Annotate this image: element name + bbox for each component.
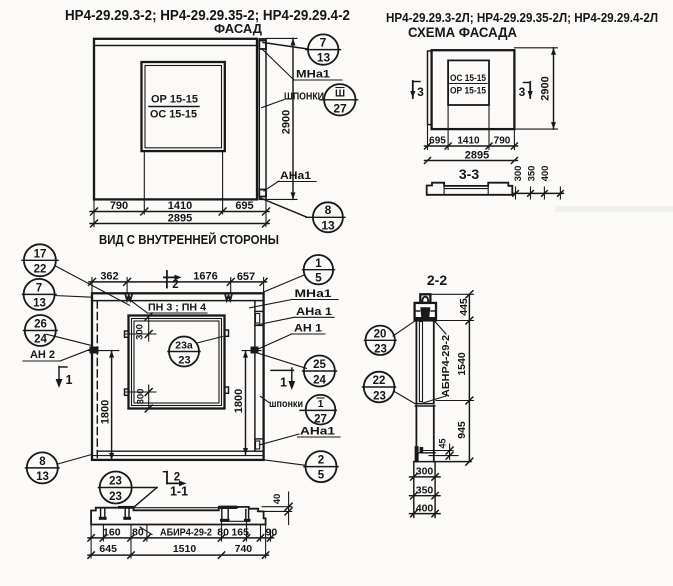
svg-text:740: 740 [235, 543, 253, 555]
svg-text:23: 23 [374, 344, 387, 356]
svg-text:445: 445 [458, 298, 470, 316]
svg-text:24: 24 [34, 334, 47, 346]
svg-text:1-1: 1-1 [170, 485, 188, 499]
svg-text:ОР 15-15: ОР 15-15 [151, 94, 198, 106]
svg-text:300: 300 [136, 389, 147, 405]
svg-text:ВИД С ВНУТРЕННЕЙ СТОРОНЫ: ВИД С ВНУТРЕННЕЙ СТОРОНЫ [99, 232, 279, 247]
svg-text:20: 20 [374, 329, 387, 341]
svg-text:17: 17 [34, 249, 47, 261]
svg-text:МНа1: МНа1 [296, 69, 330, 81]
svg-text:шпонки: шпонки [269, 399, 303, 410]
svg-text:25: 25 [313, 359, 326, 371]
svg-text:40: 40 [272, 494, 283, 505]
svg-text:24: 24 [313, 375, 326, 387]
svg-text:300: 300 [513, 166, 524, 182]
svg-text:1410: 1410 [168, 200, 192, 212]
svg-text:1410: 1410 [457, 136, 480, 147]
svg-text:ОС 15-15: ОС 15-15 [150, 109, 197, 121]
svg-text:300: 300 [416, 466, 434, 478]
svg-text:13: 13 [36, 471, 49, 483]
svg-text:7: 7 [320, 36, 327, 50]
svg-text:1: 1 [318, 398, 324, 410]
svg-text:22: 22 [34, 264, 47, 276]
svg-text:ОС 15-15: ОС 15-15 [450, 73, 487, 84]
svg-text:8: 8 [39, 456, 46, 468]
svg-text:Ш: Ш [335, 89, 345, 100]
svg-text:26: 26 [34, 319, 47, 331]
svg-text:АН 1: АН 1 [294, 323, 322, 335]
svg-text:90: 90 [266, 527, 278, 539]
svg-text:8: 8 [325, 203, 332, 217]
svg-text:3-3: 3-3 [459, 166, 479, 182]
svg-text:ФАСАД: ФАСАД [214, 21, 263, 36]
svg-text:27: 27 [314, 414, 327, 426]
svg-text:165: 165 [231, 527, 249, 539]
svg-text:300: 300 [135, 324, 146, 340]
svg-text:7: 7 [36, 283, 42, 295]
svg-text:НР4-29.29.3-2Л; НР4-29.29.35-2: НР4-29.29.3-2Л; НР4-29.29.35-2Л; НР4-29.… [386, 10, 658, 25]
svg-text:АНа 1: АНа 1 [296, 306, 332, 318]
svg-text:350: 350 [416, 484, 434, 496]
svg-text:1540: 1540 [456, 352, 468, 376]
svg-text:2895: 2895 [465, 150, 489, 162]
svg-text:1800: 1800 [233, 389, 245, 413]
svg-text:1: 1 [66, 373, 73, 387]
svg-text:2: 2 [172, 279, 178, 291]
svg-text:2895: 2895 [168, 213, 192, 225]
svg-text:ПН 3 ; ПН 4: ПН 3 ; ПН 4 [148, 302, 206, 314]
svg-text:790: 790 [110, 200, 128, 212]
svg-text:НР4-29.29.3-2; НР4-29.29.35-2;: НР4-29.29.3-2; НР4-29.29.35-2; НР4-29.29… [65, 7, 350, 24]
svg-text:23а: 23а [175, 340, 193, 352]
svg-text:1: 1 [315, 258, 322, 270]
svg-text:45: 45 [438, 438, 448, 448]
svg-text:ШПОНКИ: ШПОНКИ [284, 92, 324, 103]
svg-text:80: 80 [217, 527, 229, 539]
svg-text:ОР 15-15: ОР 15-15 [450, 86, 487, 97]
svg-text:3: 3 [519, 85, 526, 99]
svg-text:657: 657 [237, 271, 255, 283]
svg-text:645: 645 [99, 543, 117, 555]
svg-text:2900: 2900 [540, 76, 552, 100]
svg-text:695: 695 [429, 136, 446, 147]
svg-text:СХЕМА ФАСАДА: СХЕМА ФАСАДА [408, 25, 517, 40]
svg-text:5: 5 [315, 273, 322, 285]
svg-text:2: 2 [174, 472, 180, 484]
svg-text:1510: 1510 [173, 543, 197, 555]
svg-text:695: 695 [235, 200, 253, 212]
svg-text:3: 3 [417, 85, 424, 99]
svg-text:1800: 1800 [99, 400, 111, 424]
svg-text:790: 790 [494, 136, 511, 147]
svg-text:22: 22 [373, 375, 386, 387]
svg-text:1: 1 [280, 376, 287, 390]
svg-text:1676: 1676 [193, 271, 217, 283]
svg-text:АБНР4-29-2: АБНР4-29-2 [440, 335, 452, 397]
svg-text:АНа1: АНа1 [300, 426, 335, 438]
svg-text:400: 400 [416, 502, 434, 514]
svg-text:350: 350 [527, 166, 538, 182]
svg-text:2: 2 [318, 455, 324, 467]
svg-text:АБИР4-29-2: АБИР4-29-2 [160, 527, 212, 539]
svg-text:2-2: 2-2 [427, 272, 447, 288]
svg-text:23: 23 [178, 355, 190, 367]
svg-text:2900: 2900 [281, 110, 293, 134]
svg-text:5: 5 [318, 470, 325, 482]
svg-text:23: 23 [109, 476, 122, 488]
svg-text:400: 400 [540, 166, 551, 182]
svg-text:945: 945 [456, 421, 468, 439]
svg-text:АНа1: АНа1 [280, 170, 311, 182]
svg-text:362: 362 [100, 271, 118, 283]
svg-text:27: 27 [333, 102, 347, 116]
svg-text:160: 160 [103, 527, 121, 539]
svg-text:13: 13 [33, 298, 46, 310]
svg-text:13: 13 [317, 51, 331, 65]
svg-text:13: 13 [321, 219, 335, 233]
svg-text:23: 23 [109, 491, 122, 503]
svg-text:23: 23 [373, 391, 386, 403]
svg-text:МНа1: МНа1 [295, 288, 332, 300]
svg-text:АН 2: АН 2 [30, 349, 55, 361]
